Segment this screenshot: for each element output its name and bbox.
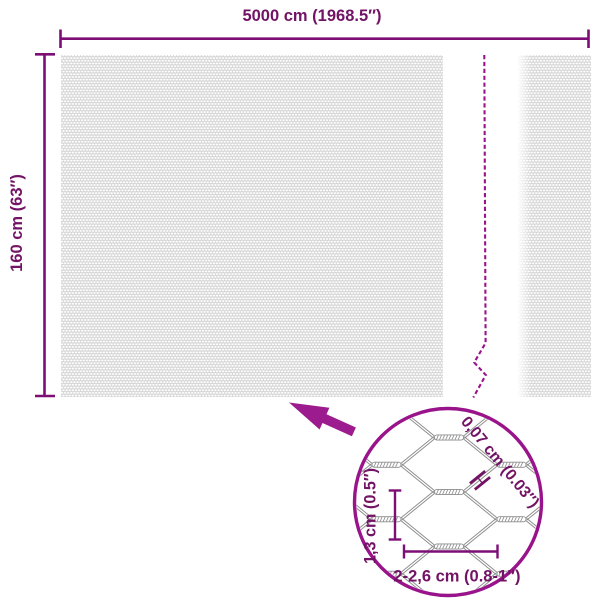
svg-text:2-2,6 cm (0.8-1″): 2-2,6 cm (0.8-1″) (393, 567, 520, 585)
svg-text:1,3 cm (0.5″): 1,3 cm (0.5″) (362, 468, 380, 564)
svg-text:5000 cm (1968.5″): 5000 cm (1968.5″) (242, 7, 381, 25)
svg-text:160 cm (63″): 160 cm (63″) (8, 174, 26, 272)
